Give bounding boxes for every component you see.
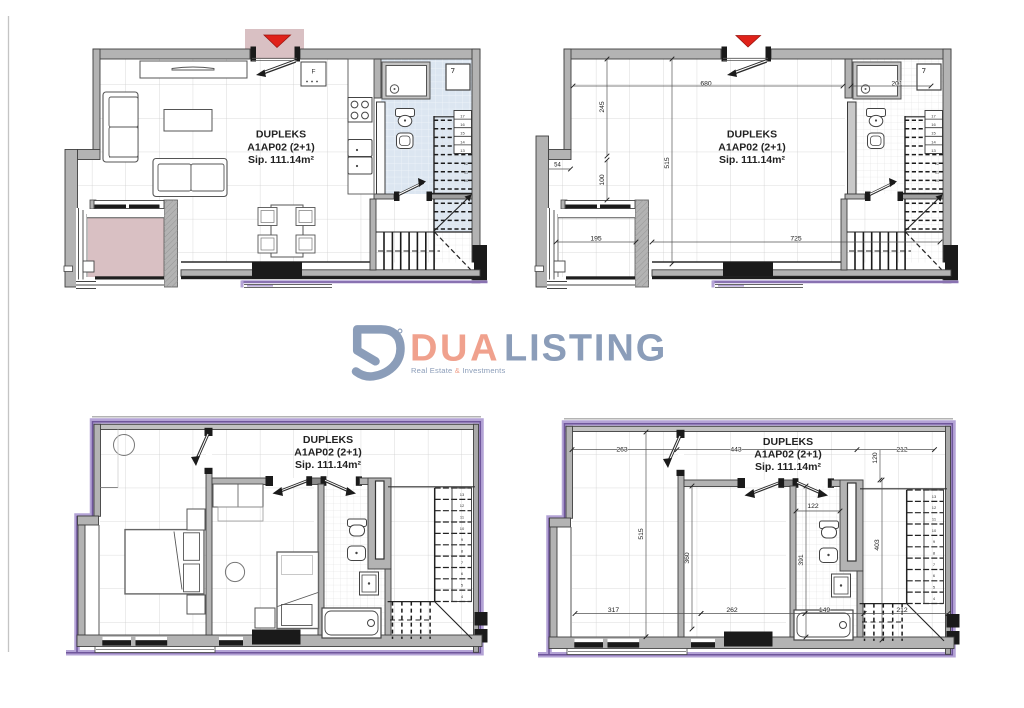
svg-text:Sip. 111.14m²: Sip. 111.14m² bbox=[755, 461, 821, 473]
svg-text:443: 443 bbox=[730, 447, 742, 454]
svg-text:149: 149 bbox=[819, 607, 831, 614]
svg-text:DUPLEKS: DUPLEKS bbox=[763, 436, 813, 448]
svg-text:212: 212 bbox=[896, 447, 908, 454]
svg-text:13: 13 bbox=[931, 148, 936, 153]
svg-text:360: 360 bbox=[684, 552, 691, 564]
svg-text:12: 12 bbox=[464, 161, 469, 166]
svg-text:317: 317 bbox=[608, 607, 620, 614]
svg-text:F: F bbox=[312, 69, 316, 76]
svg-text:13: 13 bbox=[932, 494, 937, 499]
svg-text:195: 195 bbox=[590, 236, 602, 243]
svg-text:15: 15 bbox=[931, 131, 936, 136]
svg-text:12: 12 bbox=[932, 505, 937, 510]
svg-text:10: 10 bbox=[460, 526, 465, 531]
svg-text:10: 10 bbox=[464, 178, 469, 183]
svg-text:Sip. 111.14m²: Sip. 111.14m² bbox=[295, 459, 361, 471]
svg-text:10: 10 bbox=[932, 528, 937, 533]
svg-text:12: 12 bbox=[460, 503, 465, 508]
svg-text:Sip. 111.14m²: Sip. 111.14m² bbox=[719, 154, 785, 166]
svg-text:17: 17 bbox=[931, 114, 936, 119]
svg-text:DUPLEKS: DUPLEKS bbox=[256, 129, 306, 141]
svg-text:263: 263 bbox=[616, 447, 628, 454]
svg-text:13: 13 bbox=[460, 492, 465, 497]
svg-text:391: 391 bbox=[798, 554, 805, 566]
svg-text:A1AP02 (2+1): A1AP02 (2+1) bbox=[247, 141, 314, 153]
svg-text:245: 245 bbox=[599, 101, 606, 113]
svg-text:122: 122 bbox=[807, 503, 819, 510]
svg-text:17: 17 bbox=[460, 114, 465, 119]
svg-text:14: 14 bbox=[460, 139, 465, 144]
svg-text:403: 403 bbox=[874, 539, 881, 551]
svg-text:212: 212 bbox=[896, 607, 908, 614]
svg-text:15: 15 bbox=[460, 131, 465, 136]
svg-text:100: 100 bbox=[599, 174, 606, 186]
svg-text:DUPLEKS: DUPLEKS bbox=[303, 434, 353, 446]
svg-text:Real Estate & Investments: Real Estate & Investments bbox=[411, 366, 505, 375]
svg-text:16: 16 bbox=[931, 122, 936, 127]
svg-text:515: 515 bbox=[664, 157, 671, 169]
svg-text:54: 54 bbox=[554, 163, 561, 169]
svg-text:A1AP02 (2+1): A1AP02 (2+1) bbox=[294, 447, 361, 459]
svg-text:DUPLEKS: DUPLEKS bbox=[727, 129, 777, 141]
svg-text:201: 201 bbox=[891, 80, 903, 87]
svg-text:515: 515 bbox=[638, 528, 645, 540]
svg-text:14: 14 bbox=[931, 139, 936, 144]
svg-text:12: 12 bbox=[935, 161, 940, 166]
svg-text:A1AP02 (2+1): A1AP02 (2+1) bbox=[754, 449, 821, 461]
svg-text:120: 120 bbox=[872, 452, 879, 464]
svg-text:725: 725 bbox=[790, 236, 802, 243]
svg-text:10: 10 bbox=[935, 178, 940, 183]
svg-text:262: 262 bbox=[726, 607, 738, 614]
svg-text:16: 16 bbox=[460, 122, 465, 127]
svg-text:A1AP02 (2+1): A1AP02 (2+1) bbox=[718, 141, 785, 153]
svg-text:Sip. 111.14m²: Sip. 111.14m² bbox=[248, 154, 314, 166]
svg-text:13: 13 bbox=[460, 148, 465, 153]
svg-text:LISTING: LISTING bbox=[504, 328, 667, 370]
svg-text:680: 680 bbox=[700, 80, 712, 87]
svg-text:DUA: DUA bbox=[410, 328, 500, 370]
